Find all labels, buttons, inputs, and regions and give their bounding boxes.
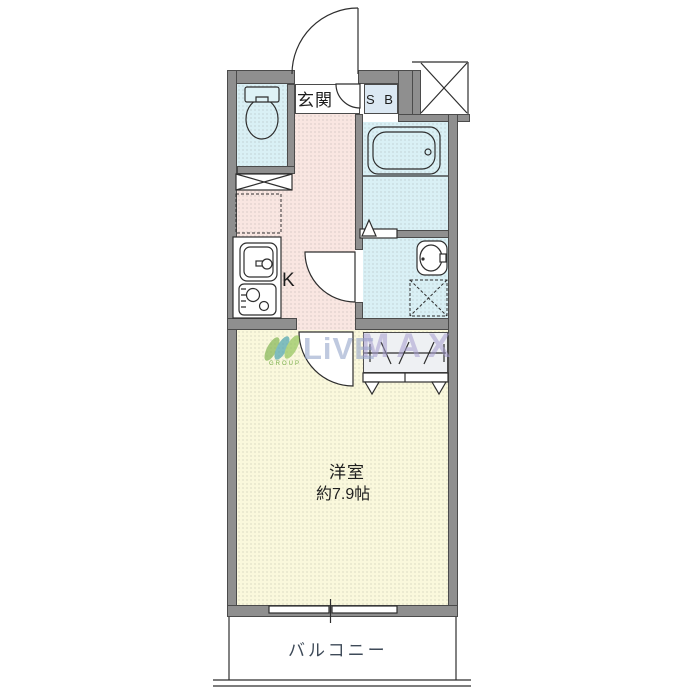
kitchen-label: K bbox=[282, 270, 295, 292]
storage-box-x-icon bbox=[236, 174, 292, 190]
balcony-label: バルコニー bbox=[288, 636, 388, 661]
refrigerator-space-icon bbox=[236, 194, 281, 233]
entrance-label: 玄関 bbox=[297, 86, 333, 111]
room-size-label: 約7.9帖 bbox=[316, 480, 370, 504]
bathroom-door-icon bbox=[360, 220, 397, 238]
bathtub-icon bbox=[363, 127, 448, 176]
pipe-space-x-icon bbox=[412, 62, 468, 114]
watermark-group-text: GROUP bbox=[269, 361, 301, 367]
watermark-max-text: MAX bbox=[361, 327, 458, 366]
washbasin-icon bbox=[417, 241, 447, 275]
window-icon bbox=[269, 599, 397, 623]
floor-plan: S B bbox=[0, 0, 700, 700]
stove-icon bbox=[239, 284, 276, 315]
closet-doors-icon bbox=[363, 373, 448, 394]
kitchen-sink-icon bbox=[240, 243, 277, 281]
washing-machine-space-icon bbox=[410, 280, 447, 316]
toilet-icon bbox=[245, 87, 279, 139]
kitchen-door-arc-icon bbox=[305, 252, 355, 302]
